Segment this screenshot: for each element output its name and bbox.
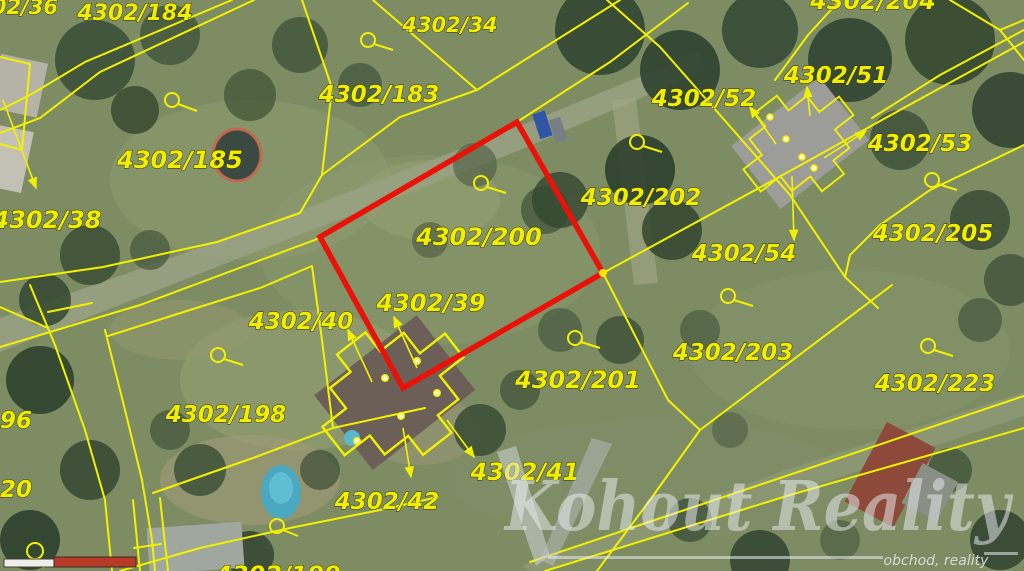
parcel-corner-marker bbox=[599, 269, 607, 277]
parcel-label: 4302/34 bbox=[401, 13, 497, 37]
parcel-label: 4302/205 bbox=[872, 221, 993, 247]
parcel-label: 4302/38 bbox=[0, 206, 101, 234]
parcel-label: 4302/198 bbox=[165, 402, 286, 428]
parcel-label-partial: 4302/199 bbox=[214, 561, 341, 571]
parcel-label: 4302/201 bbox=[514, 366, 641, 394]
parcel-label: 4302/42 bbox=[334, 489, 439, 515]
parcel-label: 4302/223 bbox=[874, 371, 995, 397]
parcel-label: 4302/203 bbox=[672, 340, 793, 366]
watermark-tagline: obchod, reality bbox=[884, 553, 990, 569]
parcel-label-partial: 20 bbox=[0, 477, 32, 503]
parcel-label: 4302/184 bbox=[76, 1, 192, 26]
parcel-label-highlighted: 4302/200 bbox=[415, 223, 542, 251]
parcel-label: 4302/202 bbox=[580, 185, 701, 211]
parcel-label: 4302/185 bbox=[116, 146, 243, 174]
parcel-label: 4302/183 bbox=[318, 82, 439, 108]
parcel-label: 4302/51 bbox=[783, 63, 888, 89]
cadastral-map-canvas[interactable]: 4302/36 4302/184 4302/34 4302/183 4302/5… bbox=[0, 0, 1024, 571]
parcel-label: 4302/36 bbox=[0, 0, 58, 19]
parcel-label: 4302/40 bbox=[248, 309, 353, 335]
parcel-label-partial: 96 bbox=[0, 408, 32, 434]
parcel-label: 4302/52 bbox=[651, 86, 756, 112]
parcel-label: 4302/54 bbox=[691, 241, 796, 267]
scale-bar bbox=[4, 557, 136, 567]
parcel-label: 4302/39 bbox=[376, 289, 486, 317]
watermark-brand: Kohout Reality bbox=[503, 467, 1014, 547]
parcel-label-partial: 4302/204 bbox=[809, 0, 936, 15]
parcel-label: 4302/53 bbox=[867, 131, 972, 157]
